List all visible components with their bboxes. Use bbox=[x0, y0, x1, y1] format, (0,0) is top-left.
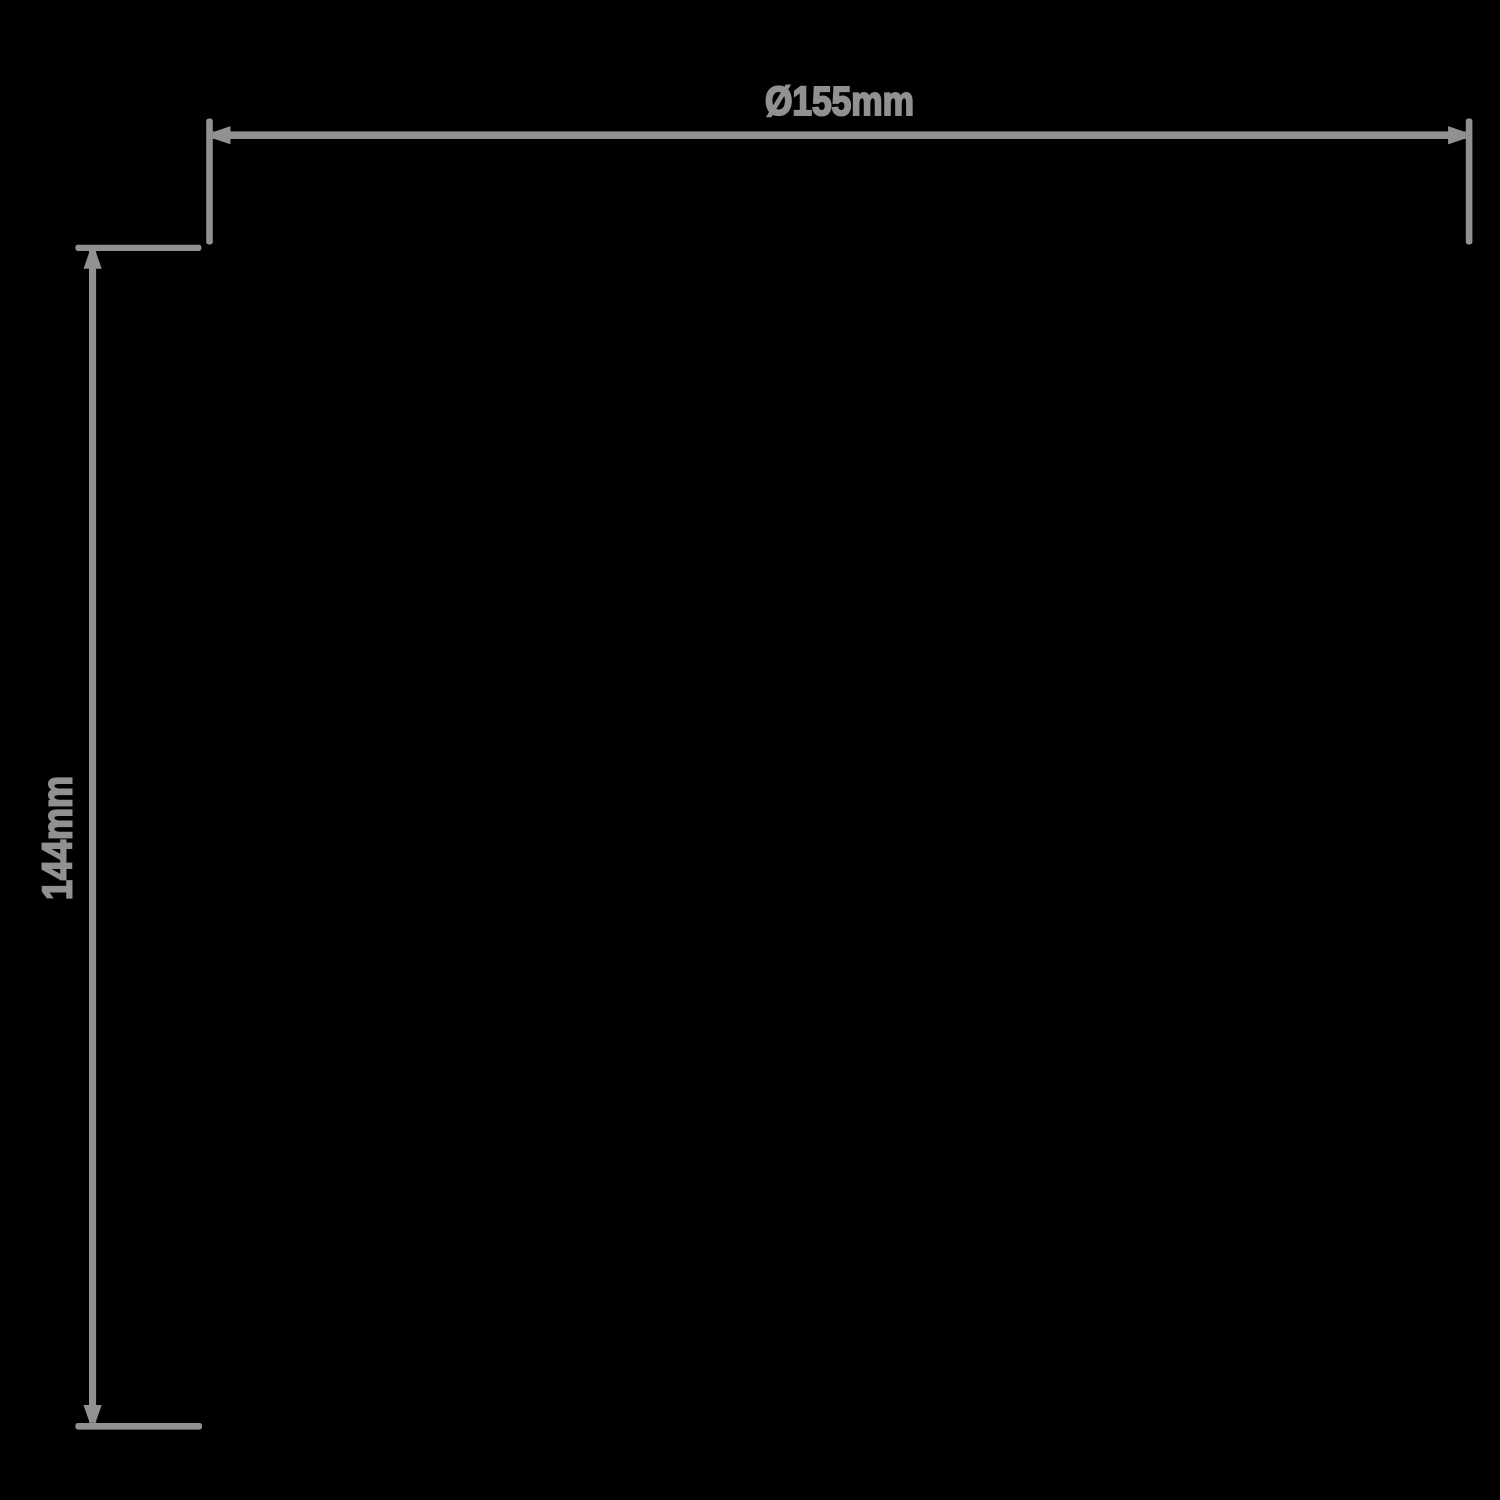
svg-text:144mm: 144mm bbox=[34, 776, 81, 900]
svg-text:Ø155mm: Ø155mm bbox=[765, 78, 914, 124]
